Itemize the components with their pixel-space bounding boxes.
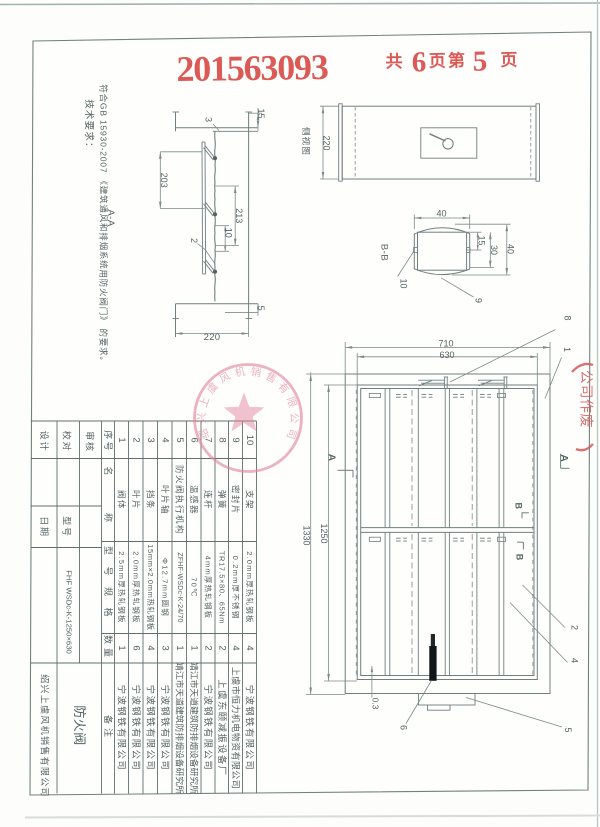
svg-text:213: 213 bbox=[234, 208, 244, 223]
svg-text:201563093: 201563093 bbox=[176, 47, 328, 89]
svg-text:备注: 备注 bbox=[103, 715, 114, 741]
svg-text:宁波钢铁有限公司: 宁波钢铁有限公司 bbox=[245, 685, 256, 771]
svg-text:公: 公 bbox=[288, 413, 300, 424]
svg-text:4: 4 bbox=[230, 645, 241, 650]
svg-text:审核: 审核 bbox=[85, 431, 96, 453]
svg-text:绍兴上虞风机销售有限公司: 绍兴上虞风机销售有限公司 bbox=[40, 674, 51, 798]
svg-text:阀体: 阀体 bbox=[117, 490, 127, 510]
svg-text:技术要求：: 技术要求： bbox=[83, 99, 95, 153]
svg-text:1: 1 bbox=[116, 437, 127, 442]
svg-text:8: 8 bbox=[563, 315, 573, 320]
svg-text:710: 710 bbox=[438, 339, 453, 349]
svg-text:1: 1 bbox=[116, 645, 127, 650]
svg-text:0.2mm厚不锈钢: 0.2mm厚不锈钢 bbox=[231, 556, 241, 620]
svg-text:4mm厚热轧钢板: 4mm厚热轧钢板 bbox=[204, 556, 214, 620]
svg-text:叶片: 叶片 bbox=[131, 490, 141, 510]
svg-text:A-A: A-A bbox=[105, 209, 116, 227]
svg-text:宁波钢铁有限公司: 宁波钢铁有限公司 bbox=[145, 685, 156, 771]
svg-text:5: 5 bbox=[473, 45, 488, 77]
svg-text:日期: 日期 bbox=[39, 516, 49, 538]
svg-text:叶片轴: 叶片轴 bbox=[160, 485, 170, 515]
svg-text:70℃: 70℃ bbox=[189, 577, 198, 597]
svg-text:B-B: B-B bbox=[379, 244, 390, 261]
svg-text:30: 30 bbox=[489, 245, 499, 255]
svg-text:A: A bbox=[326, 454, 338, 462]
svg-text:9: 9 bbox=[474, 298, 484, 303]
svg-text:名 称: 名 称 bbox=[103, 466, 114, 539]
svg-text:FHF WSDc-K-1250×630: FHF WSDc-K-1250×630 bbox=[65, 570, 74, 654]
svg-text:40: 40 bbox=[436, 209, 446, 219]
svg-text:靖江市天道建筑防排烟设备研究所: 靖江市天道建筑防排烟设备研究所 bbox=[189, 662, 200, 794]
svg-text:10: 10 bbox=[399, 278, 409, 288]
svg-text:630: 630 bbox=[439, 350, 454, 360]
svg-text:1: 1 bbox=[174, 645, 185, 650]
svg-text:防火阀: 防火阀 bbox=[72, 705, 87, 746]
svg-text:8: 8 bbox=[216, 437, 227, 442]
svg-text:Φ12.7mm圆钢: Φ12.7mm圆钢 bbox=[160, 558, 170, 617]
svg-text:203: 203 bbox=[159, 173, 169, 188]
svg-text:220: 220 bbox=[204, 332, 221, 343]
svg-text:B: B bbox=[515, 554, 525, 561]
svg-text:4: 4 bbox=[570, 658, 580, 663]
svg-text:5: 5 bbox=[174, 437, 185, 442]
svg-text:B: B bbox=[514, 503, 524, 510]
svg-text:上虞市恒力机电物资有限公司: 上虞市恒力机电物资有限公司 bbox=[231, 667, 242, 789]
svg-text:宁波钢铁有限公司: 宁波钢铁有限公司 bbox=[117, 685, 128, 771]
svg-text:靖江市天道建筑防排烟设备研究所: 靖江市天道建筑防排烟设备研究所 bbox=[174, 662, 185, 794]
svg-text:40: 40 bbox=[505, 244, 515, 254]
svg-text:型号: 型号 bbox=[62, 516, 72, 538]
svg-text:1: 1 bbox=[188, 645, 199, 650]
svg-text:ZFHF-WSDc-K-24/70: ZFHF-WSDc-K-24/70 bbox=[176, 552, 183, 622]
svg-text:兴: 兴 bbox=[196, 413, 208, 424]
svg-text:4: 4 bbox=[244, 645, 255, 650]
svg-text:15: 15 bbox=[476, 235, 486, 245]
svg-text:序号: 序号 bbox=[103, 430, 114, 452]
svg-text:校对: 校对 bbox=[62, 431, 73, 453]
svg-text:10: 10 bbox=[244, 435, 255, 446]
svg-text:2: 2 bbox=[130, 437, 141, 442]
svg-text:设计: 设计 bbox=[39, 431, 50, 453]
svg-text:侧视图: 侧视图 bbox=[301, 127, 311, 156]
svg-text:页第: 页第 bbox=[429, 50, 468, 71]
svg-text:宁波钢铁有限公司: 宁波钢铁有限公司 bbox=[160, 685, 171, 771]
svg-text:3: 3 bbox=[145, 437, 156, 442]
svg-text:宁波钢铁有限公司: 宁波钢铁有限公司 bbox=[131, 685, 142, 771]
svg-text:2.0mm厚热轧钢板: 2.0mm厚热轧钢板 bbox=[245, 551, 255, 623]
svg-text:页: 页 bbox=[500, 51, 517, 70]
svg-text:220: 220 bbox=[321, 135, 331, 150]
svg-text:连杆: 连杆 bbox=[203, 490, 213, 510]
svg-text:宁波钢铁有限公司: 宁波钢铁有限公司 bbox=[203, 685, 214, 771]
svg-text:5: 5 bbox=[563, 727, 573, 732]
svg-text:1: 1 bbox=[562, 347, 572, 352]
svg-text:数量: 数量 bbox=[103, 635, 114, 661]
svg-text:2: 2 bbox=[216, 645, 227, 650]
svg-text:6: 6 bbox=[130, 645, 141, 650]
svg-text:支架: 支架 bbox=[245, 490, 255, 510]
svg-text:10: 10 bbox=[223, 228, 233, 238]
svg-text:型号规格: 型号规格 bbox=[103, 546, 114, 628]
svg-text:防火阀执行机构: 防火阀执行机构 bbox=[174, 465, 184, 535]
svg-text:挡条: 挡条 bbox=[145, 490, 155, 510]
svg-text:2.5mm厚热轧钢板: 2.5mm厚热轧钢板 bbox=[117, 551, 127, 623]
svg-text:2: 2 bbox=[189, 238, 199, 243]
svg-text:2.0mm厚热轧钢板: 2.0mm厚热轧钢板 bbox=[131, 551, 141, 623]
svg-text:3: 3 bbox=[204, 117, 214, 122]
svg-text:公司作废: 公司作废 bbox=[579, 370, 595, 428]
svg-text:6: 6 bbox=[412, 46, 427, 78]
svg-text:上虞东颐减振设备厂: 上虞东颐减振设备厂 bbox=[217, 679, 228, 776]
svg-text:9: 9 bbox=[230, 437, 241, 442]
svg-text:销: 销 bbox=[250, 365, 263, 380]
svg-text:1250: 1250 bbox=[319, 523, 329, 543]
svg-text:15mm×2.0mm热轧钢板: 15mm×2.0mm热轧钢板 bbox=[146, 544, 156, 631]
svg-text:A: A bbox=[558, 454, 570, 462]
svg-text:3: 3 bbox=[159, 645, 170, 650]
svg-text:0.3: 0.3 bbox=[370, 698, 380, 710]
svg-text:6: 6 bbox=[399, 725, 409, 730]
svg-text:1330: 1330 bbox=[301, 525, 311, 545]
svg-text:2: 2 bbox=[203, 645, 214, 650]
svg-text:4: 4 bbox=[159, 437, 170, 442]
svg-text:TR17.5×80、65Nm: TR17.5×80、65Nm bbox=[217, 551, 226, 624]
svg-text:2: 2 bbox=[570, 625, 580, 630]
svg-text:密封片: 密封片 bbox=[231, 485, 241, 515]
svg-text:弹簧: 弹簧 bbox=[217, 490, 227, 510]
svg-text:温感器: 温感器 bbox=[189, 485, 199, 515]
svg-text:共: 共 bbox=[385, 52, 402, 71]
svg-text:4: 4 bbox=[145, 645, 156, 650]
